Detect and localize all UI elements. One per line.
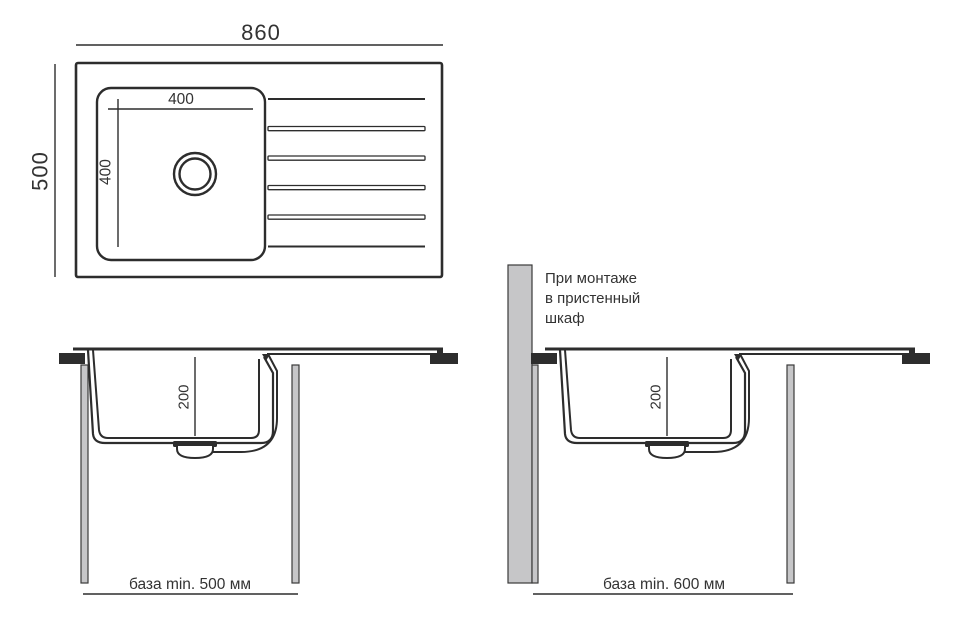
drainboard-groove [268, 215, 425, 219]
note-line-2: в пристенный [545, 290, 640, 307]
drainboard-groove [268, 127, 425, 131]
drainboard-groove [268, 156, 425, 160]
sink-cross-section [59, 349, 458, 458]
cabinet-panel-left [532, 365, 538, 583]
base-dimension-label: база min. 500 мм [129, 576, 251, 593]
base-dimension-label: база min. 600 мм [603, 576, 725, 593]
section-view-wall-cabinet: При монтаже в пристенный шкаф 200 база m… [508, 265, 930, 594]
sink-outline [76, 63, 442, 277]
sink-cross-section [531, 349, 930, 458]
dimension-label-bowl-length: 400 [98, 159, 115, 185]
drain-hole-inner [180, 159, 211, 190]
section-view-standard: 200 база min. 500 мм [59, 349, 458, 594]
cabinet-panel-right [787, 365, 794, 583]
wall-panel [508, 265, 532, 583]
dimension-label-bowl-width: 400 [168, 91, 194, 108]
depth-dimension-label: 200 [648, 384, 665, 409]
dimension-label-depth: 500 [28, 151, 53, 191]
depth-dimension-label: 200 [176, 384, 193, 409]
dimension-label-width: 860 [241, 20, 281, 45]
cabinet-panel-right [292, 365, 299, 583]
sink-technical-drawing: 860 500 400 400 200 база min. 500 мм [0, 0, 966, 620]
top-view: 860 500 400 400 [28, 20, 444, 277]
cabinet-panel-left [81, 365, 88, 583]
bowl-outline [97, 88, 265, 260]
drainboard-groove [268, 186, 425, 190]
note-line-1: При монтаже [545, 270, 637, 287]
note-line-3: шкаф [545, 310, 585, 327]
